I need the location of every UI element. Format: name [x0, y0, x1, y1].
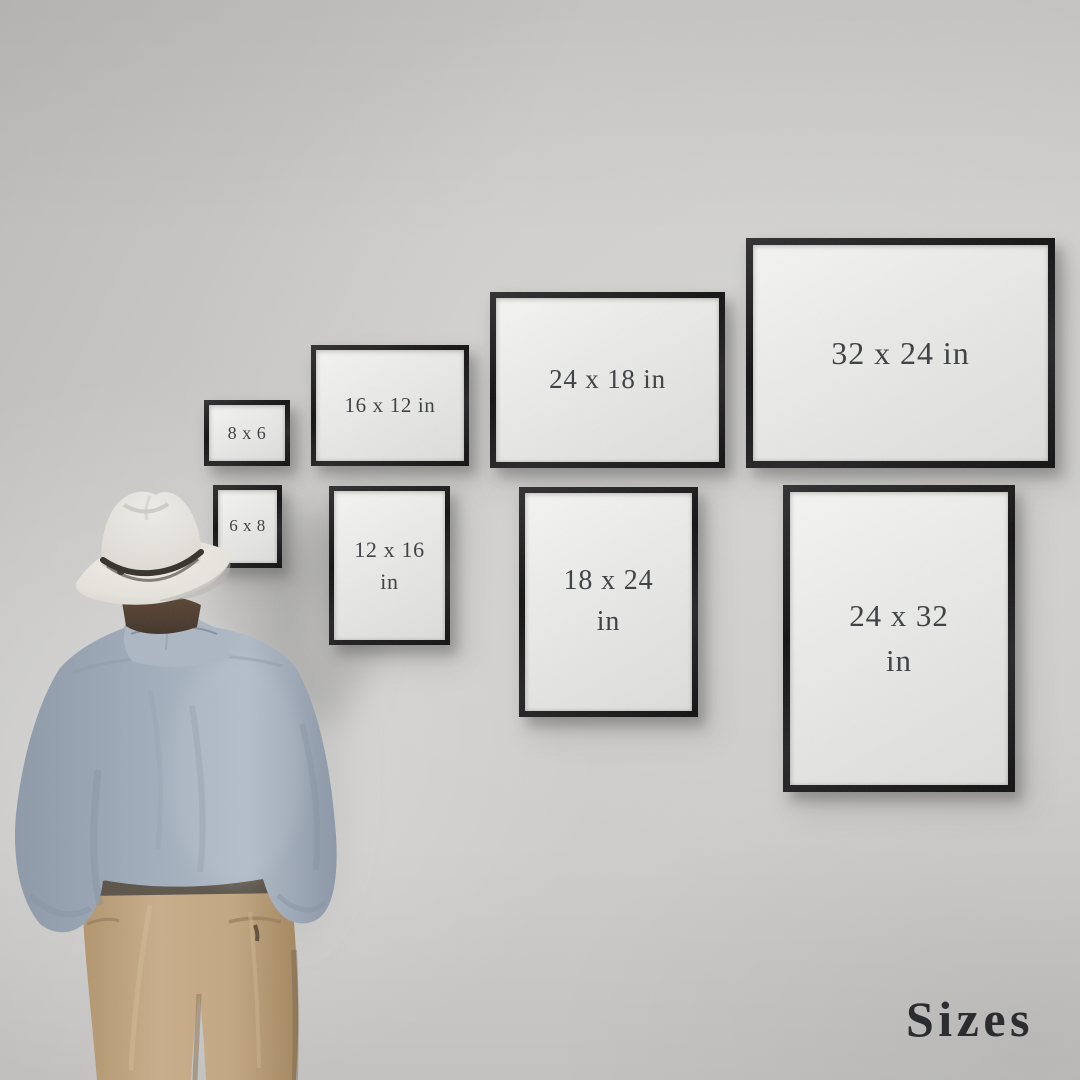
size-label: 12 x 16	[354, 534, 425, 566]
size-label-line2: in	[564, 602, 654, 643]
frame-paper: 24 x 18 in	[496, 298, 719, 462]
frame-paper: 24 x 32 in	[790, 492, 1008, 785]
frame-24x32: 24 x 32 in	[783, 485, 1015, 792]
frame-8x6: 8 x 6	[204, 400, 290, 466]
size-label: 32 x 24 in	[831, 330, 970, 376]
size-label: 16 x 12 in	[345, 390, 436, 420]
frame-32x24: 32 x 24 in	[746, 238, 1055, 468]
frame-paper: 32 x 24 in	[753, 245, 1048, 461]
size-label: 8 x 6	[228, 420, 267, 446]
size-label-line2: in	[849, 639, 949, 684]
frame-paper: 12 x 16 in	[334, 491, 445, 640]
frame-6x8: 6 x 8	[213, 485, 282, 568]
frame-18x24: 18 x 24 in	[519, 487, 698, 717]
size-label: 24 x 32	[849, 594, 949, 639]
sizes-title: Sizes	[906, 994, 1034, 1044]
frame-paper: 18 x 24 in	[525, 493, 692, 711]
frame-size-guide-mockup: 8 x 6 16 x 12 in 24 x 18 in 32 x 24 in	[0, 0, 1080, 1080]
size-label: 6 x 8	[229, 514, 266, 539]
frame-24x18: 24 x 18 in	[490, 292, 725, 468]
size-label: 18 x 24	[564, 561, 654, 602]
frame-paper: 8 x 6	[209, 405, 285, 461]
size-label: 24 x 18 in	[549, 360, 666, 399]
frame-16x12: 16 x 12 in	[311, 345, 469, 466]
frame-paper: 6 x 8	[218, 490, 277, 563]
size-label-line2: in	[354, 566, 425, 598]
frame-12x16: 12 x 16 in	[329, 486, 450, 645]
frame-paper: 16 x 12 in	[316, 350, 464, 461]
